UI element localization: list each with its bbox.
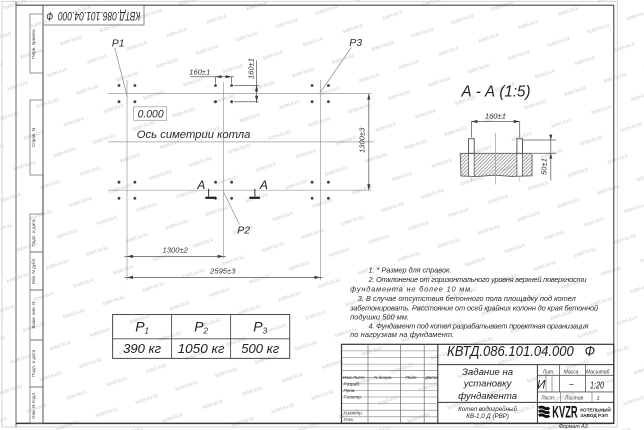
- svg-text:Утв.: Утв.: [344, 417, 354, 422]
- svg-text:50±1: 50±1: [540, 158, 549, 175]
- svg-text:500 кг: 500 кг: [241, 341, 279, 356]
- svg-text:160±1: 160±1: [189, 68, 210, 77]
- svg-text:Формат А3: Формат А3: [559, 424, 589, 430]
- svg-text:установку: установку: [463, 378, 513, 389]
- svg-text:Подп. и дата: Подп. и дата: [31, 219, 36, 247]
- svg-text:Справ. N: Справ. N: [31, 128, 36, 147]
- svg-text:KVZR: KVZR: [552, 404, 577, 422]
- svg-text:Инв. N подл.: Инв. N подл.: [31, 392, 36, 419]
- svg-text:Ось симетрии котла: Ось симетрии котла: [137, 129, 251, 141]
- svg-text:P3: P3: [349, 37, 362, 49]
- svg-text:0.000: 0.000: [138, 109, 165, 121]
- svg-text:Листов: Листов: [564, 396, 584, 402]
- svg-text:И: И: [537, 380, 546, 392]
- svg-text:Инв. N дубл.: Инв. N дубл.: [31, 258, 36, 285]
- svg-text:Задание на: Задание на: [462, 367, 513, 378]
- svg-text:Масштаб: Масштаб: [586, 370, 610, 376]
- svg-text:КВТД.086.101.04.000 Ф: КВТД.086.101.04.000 Ф: [447, 344, 595, 360]
- svg-text:подушки 500 мм.: подушки 500 мм.: [350, 312, 409, 321]
- svg-text:КВ-1,0 Д (РВР): КВ-1,0 Д (РВР): [466, 413, 509, 420]
- svg-text:1050 кг: 1050 кг: [178, 341, 226, 356]
- svg-text:Изм.Лист: Изм.Лист: [343, 375, 365, 380]
- svg-text:1. * Размер для справок.: 1. * Размер для справок.: [369, 265, 452, 274]
- svg-text:Разраб.: Разраб.: [344, 381, 361, 386]
- svg-text:фундамента: фундамента: [458, 391, 517, 402]
- svg-text:N докум.: N докум.: [374, 375, 393, 380]
- svg-text:P2: P2: [237, 225, 250, 237]
- svg-text:1300±3: 1300±3: [357, 127, 366, 153]
- svg-text:4. Фундамент под котел разраба: 4. Фундамент под котел разрабатывает про…: [369, 321, 589, 330]
- svg-text:ЗАВОД РЭП: ЗАВОД РЭП: [580, 413, 608, 418]
- svg-text:1: 1: [596, 396, 599, 402]
- svg-text:Котел водогрейный: Котел водогрейный: [458, 406, 517, 413]
- svg-text:P1: P1: [112, 38, 125, 50]
- svg-text:фундамента не более 10 мм.: фундамента не более 10 мм.: [350, 284, 473, 293]
- svg-text:160±1: 160±1: [246, 58, 255, 79]
- svg-text:Лист: Лист: [540, 396, 554, 402]
- svg-text:забетонировать. Расстояние от: забетонировать. Расстояние от осей крайн…: [349, 304, 598, 313]
- svg-text:–: –: [568, 379, 574, 388]
- svg-text:1:20: 1:20: [590, 380, 604, 391]
- svg-text:Лит.: Лит.: [542, 370, 555, 376]
- svg-text:Н.контр.: Н.контр.: [344, 411, 363, 416]
- svg-text:160±1: 160±1: [485, 112, 506, 121]
- svg-text:3. В случае отсутствия бетонно: 3. В случае отсутствия бетонного пола пл…: [358, 294, 577, 303]
- svg-text:2595±3: 2595±3: [209, 267, 236, 276]
- svg-text:А - А (1:5): А - А (1:5): [461, 84, 531, 101]
- svg-text:Пров.: Пров.: [344, 388, 356, 393]
- svg-text:Перв. примен.: Перв. примен.: [31, 28, 36, 59]
- svg-text:A: A: [196, 178, 205, 192]
- svg-text:Подп.: Подп.: [406, 375, 418, 380]
- svg-text:КОТЕЛЬНЫЙ: КОТЕЛЬНЫЙ: [580, 405, 611, 412]
- svg-text:Взам. инв. N: Взам. инв. N: [31, 302, 36, 329]
- svg-text:1300±2: 1300±2: [163, 246, 189, 255]
- svg-text:A: A: [259, 178, 268, 192]
- svg-text:Т.контр.: Т.контр.: [344, 394, 363, 399]
- svg-text:Масса: Масса: [564, 370, 579, 376]
- svg-text:2. Отклонение от горизонтально: 2. Отклонение от горизонтального уровня …: [368, 275, 587, 284]
- svg-text:Подп. и дата: Подп. и дата: [31, 350, 36, 378]
- svg-text:по нагрузкам на фундамент.: по нагрузкам на фундамент.: [350, 330, 454, 339]
- svg-text:390 кг: 390 кг: [123, 341, 161, 356]
- svg-text:Дата: Дата: [425, 375, 439, 380]
- svg-text:КВТД.086.101.04.000 Ф: КВТД.086.101.04.000 Ф: [47, 9, 141, 21]
